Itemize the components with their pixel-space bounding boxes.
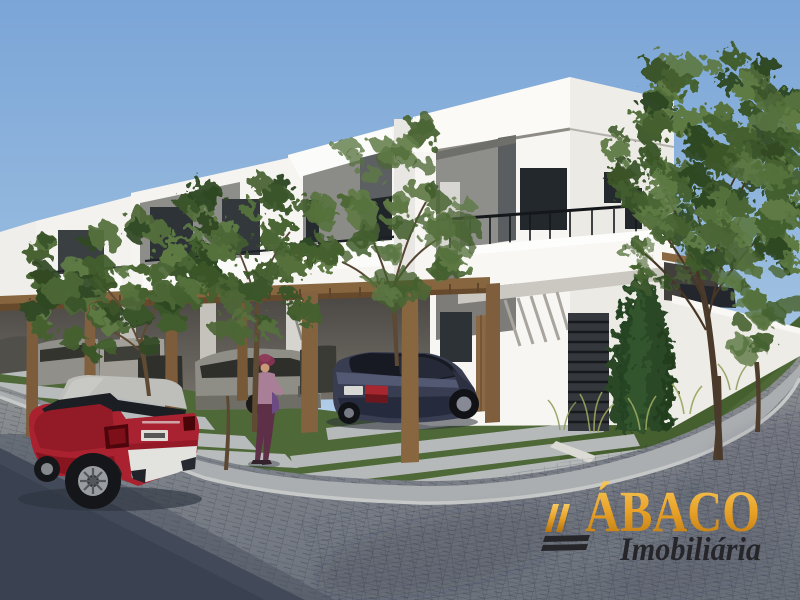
svg-text:Imobiliária: Imobiliária <box>619 532 761 568</box>
